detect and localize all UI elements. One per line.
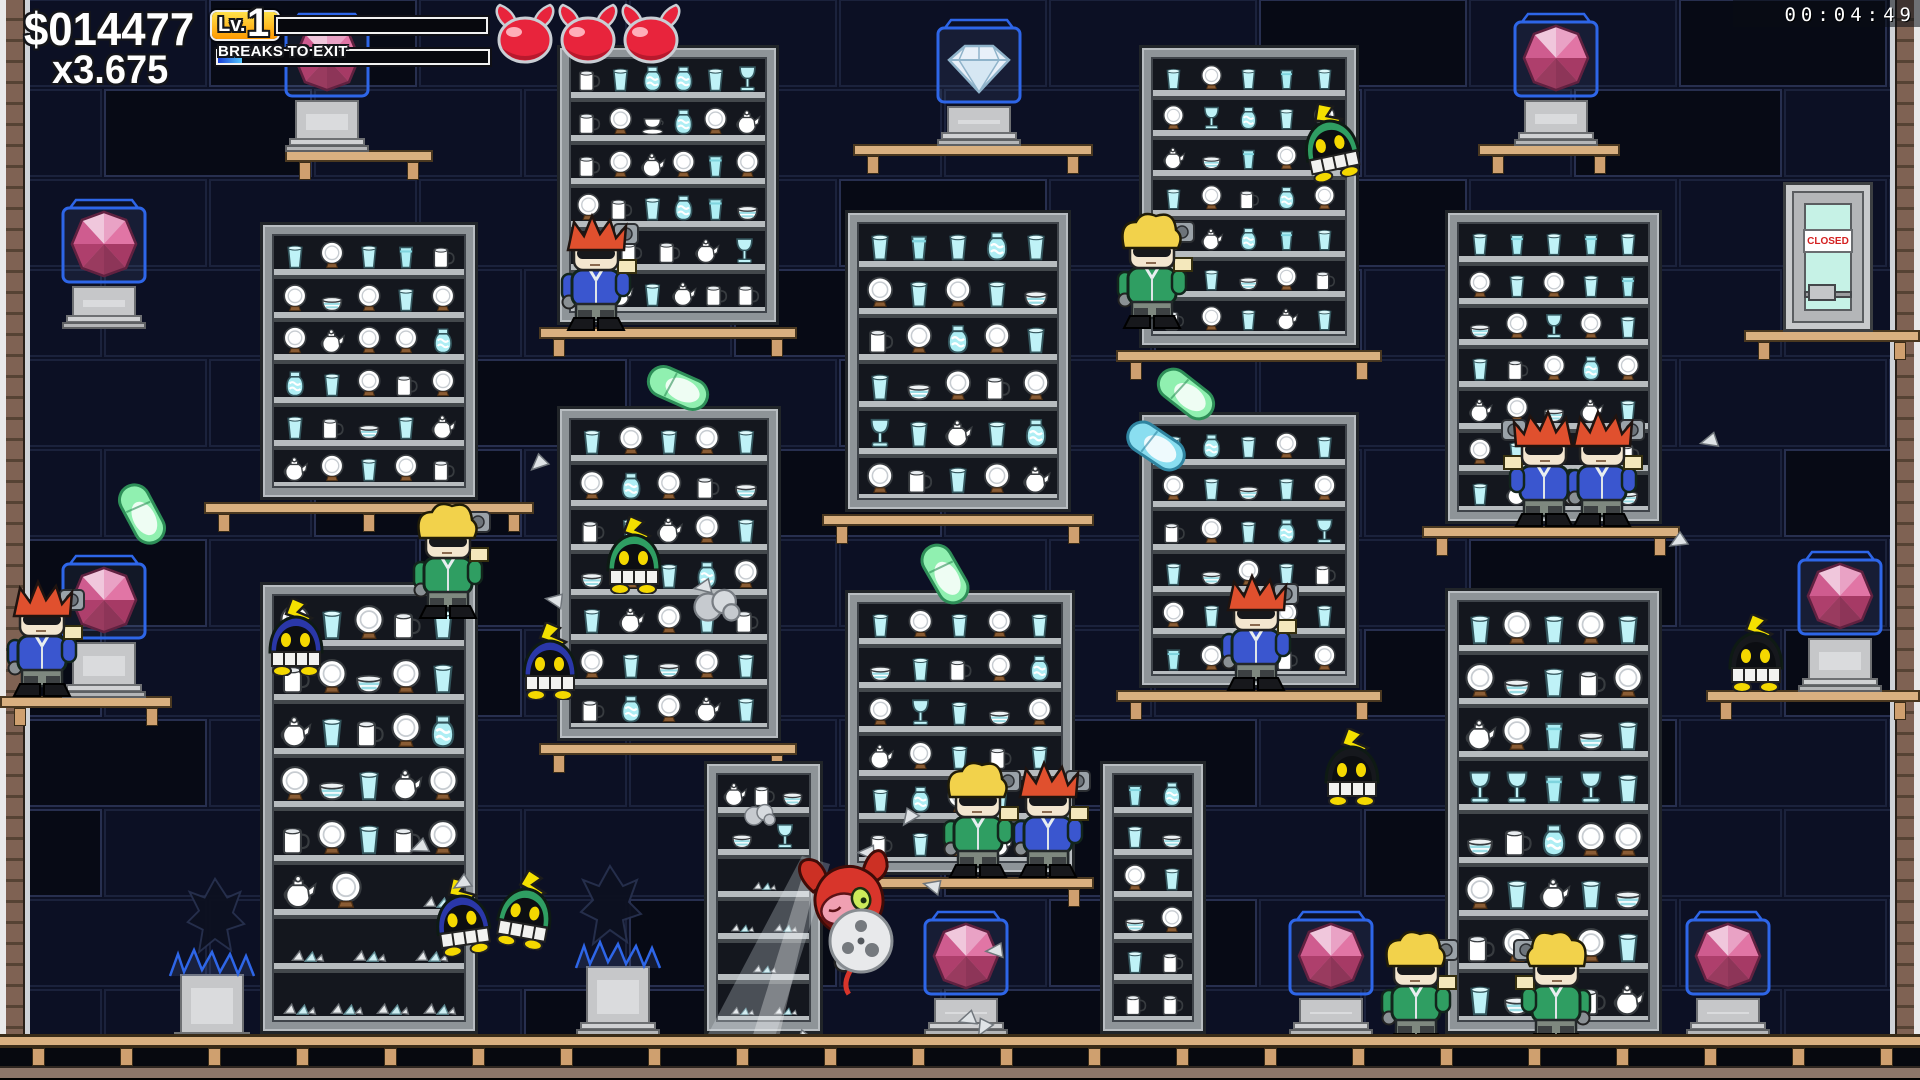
platform-post — [553, 339, 565, 357]
shelf-interior — [1112, 773, 1194, 1022]
pedestal-panel — [958, 120, 1000, 124]
floor-post — [912, 1048, 925, 1066]
dish-teapot — [733, 104, 762, 135]
display-case — [935, 16, 1023, 106]
pedestal-base — [62, 322, 146, 329]
shelf-dishes — [573, 147, 763, 178]
shelf-dishes — [1155, 182, 1343, 210]
shelf-dishes — [1461, 351, 1646, 381]
platform-post — [771, 339, 783, 357]
dish-bowl — [1463, 816, 1497, 857]
dish-plate — [1021, 694, 1058, 726]
dish-plate — [315, 238, 349, 269]
dish-plate — [1500, 710, 1534, 751]
dish-bowl — [733, 190, 762, 221]
dish-plate — [651, 601, 687, 634]
dish-bucket — [389, 238, 423, 269]
dish-bowl — [315, 281, 349, 312]
shelf-row — [274, 321, 464, 364]
floor-base — [0, 1066, 1920, 1078]
shelf-dishes — [276, 409, 462, 440]
shelf-dishes — [861, 413, 1055, 448]
shelf-dishes — [276, 238, 462, 269]
dish-cup — [278, 409, 312, 440]
dish-cup — [426, 652, 460, 694]
guard-character — [2, 576, 86, 698]
platform-post — [363, 514, 375, 532]
shelf-board — [1459, 910, 1648, 920]
floor-post — [120, 1048, 133, 1066]
dish-bowl — [901, 366, 937, 401]
floor-plank — [0, 1034, 1920, 1048]
dish-plate — [689, 422, 725, 455]
shelf-dishes — [276, 451, 462, 482]
platform-post — [1130, 702, 1142, 720]
shelf-dishes — [1461, 710, 1646, 751]
dish-bucket — [901, 226, 937, 261]
dish-cup — [1611, 604, 1645, 645]
dish-cup — [1269, 471, 1304, 501]
dish-bowl — [1574, 710, 1608, 751]
dish-cup — [862, 606, 899, 638]
level-label: Lv. — [218, 15, 245, 35]
dish-cup — [1611, 226, 1645, 256]
dish-plate — [901, 319, 937, 354]
pedestal-base — [1798, 685, 1882, 692]
shelf-row — [859, 224, 1057, 271]
dish-plate — [1537, 351, 1571, 381]
dish-plate — [613, 422, 649, 455]
dish-teapot — [613, 601, 649, 634]
dish-cup — [1463, 351, 1497, 381]
platform-post — [1067, 156, 1079, 174]
dish-plate — [1156, 598, 1191, 628]
shelf-board — [274, 855, 464, 865]
dish-goblet — [733, 61, 762, 92]
door-frame: CLOSED — [1792, 191, 1864, 323]
dish-plate — [862, 459, 898, 494]
dish-plate — [352, 281, 386, 312]
dish-cup — [1574, 268, 1608, 298]
shelf-row — [1459, 224, 1648, 266]
dish-shards — [279, 974, 319, 1016]
dish-plate — [1574, 816, 1608, 857]
dish-plate — [574, 467, 610, 500]
dish-teapot — [862, 738, 899, 770]
platform-post — [508, 514, 520, 532]
shelf-board — [859, 494, 1057, 500]
dish-cup — [1231, 62, 1266, 90]
shelf-row — [1114, 817, 1192, 859]
level-progress-bar — [276, 17, 488, 34]
shelf-board — [274, 801, 464, 811]
dish-vase — [1021, 650, 1058, 682]
dish-bucket — [1231, 142, 1266, 170]
dish-vase — [1537, 816, 1571, 857]
dish-plate — [1194, 303, 1229, 331]
dish-shards — [287, 921, 327, 963]
dish-bucket — [1156, 641, 1191, 671]
shelf-board — [1153, 331, 1345, 336]
shelf-dishes — [1116, 819, 1190, 849]
floor-post — [1880, 1048, 1893, 1066]
dish-vase — [278, 366, 312, 397]
guard-character — [1008, 757, 1092, 879]
dish-bucket — [1574, 226, 1608, 256]
dish-bowl — [1500, 657, 1534, 698]
floor-post — [1704, 1048, 1717, 1066]
dish-shards — [349, 921, 389, 963]
shelf-board — [274, 1016, 464, 1022]
dish-cup — [728, 422, 764, 455]
shelf-row — [1459, 814, 1648, 867]
lives-hearts — [492, 2, 684, 69]
dish-plate — [426, 281, 460, 312]
floor-post — [1352, 1048, 1365, 1066]
smoke-puff — [742, 798, 778, 827]
dish-goblet — [902, 694, 939, 726]
dish-mug — [426, 238, 460, 269]
dish-bowl — [862, 650, 899, 682]
dish-cup — [1537, 604, 1571, 645]
life-heart-icon — [618, 2, 684, 69]
dish-cup — [1156, 182, 1191, 210]
dish-goblet — [1574, 763, 1608, 804]
dish-plate — [1154, 903, 1190, 933]
breaks-to-exit-label: BREAKS TO EXIT — [218, 44, 348, 59]
floor-post — [1528, 1048, 1541, 1066]
dish-plate — [979, 319, 1015, 354]
dish-plate — [1194, 62, 1229, 90]
shelf-row — [1114, 901, 1192, 943]
dish-plate — [426, 366, 460, 397]
shelf-row — [1114, 775, 1192, 817]
shelf-board — [859, 354, 1057, 364]
shelf-dishes — [861, 694, 1059, 726]
pedestal-base — [937, 139, 1021, 146]
shelf-unit — [1100, 761, 1206, 1034]
dish-cup — [1231, 429, 1266, 459]
dish-plate — [389, 451, 423, 482]
door-handle — [1808, 284, 1836, 301]
dish-vase — [613, 690, 649, 723]
floor-post — [32, 1048, 45, 1066]
platform-post — [299, 162, 311, 180]
dish-vase — [1269, 514, 1304, 544]
dish-cup — [1194, 263, 1229, 291]
dish-teapot — [278, 706, 312, 748]
dish-mug — [278, 813, 312, 855]
life-heart-icon — [555, 2, 621, 69]
dish-bowl — [1231, 471, 1266, 501]
dish-bowl — [1018, 273, 1054, 308]
dish-vase — [1194, 429, 1229, 459]
shelf-board — [1459, 698, 1648, 708]
shelf-board — [1114, 849, 1192, 859]
dish-plate — [1574, 309, 1608, 339]
dish-bowl — [315, 759, 349, 801]
display-case — [1287, 908, 1375, 998]
dish-plate — [651, 690, 687, 723]
dish-plate — [352, 366, 386, 397]
shelf-row — [1114, 942, 1192, 984]
dish-cup — [701, 61, 730, 92]
dish-cup — [902, 650, 939, 682]
platform-plank — [822, 514, 1094, 526]
platform-post — [1130, 362, 1142, 380]
dish-cup — [1537, 226, 1571, 256]
dish-cup — [278, 238, 312, 269]
bomb-enemy — [516, 622, 584, 700]
shelf-row — [1459, 602, 1648, 655]
dish-cup — [1574, 869, 1608, 910]
game-viewport[interactable]: CLOSED $014477 x3.675 Lv. 1 BREAKS TO EX… — [0, 0, 1920, 1080]
shelf-board — [859, 401, 1057, 411]
shelf-dishes — [573, 690, 765, 723]
score-display: $014477 — [24, 6, 194, 52]
dish-vase — [1154, 777, 1190, 807]
shelf-board — [859, 261, 1057, 271]
shelf-row — [1114, 984, 1192, 1022]
shelf-board — [571, 723, 767, 729]
dish-mug — [1500, 351, 1534, 381]
dish-cup — [1194, 471, 1229, 501]
dish-bucket — [1117, 777, 1153, 807]
dish-mug — [315, 409, 349, 440]
dish-mug — [862, 319, 898, 354]
dish-cup — [1500, 268, 1534, 298]
dish-shards — [326, 974, 366, 1016]
shelf-board — [1459, 256, 1648, 266]
dish-mug — [689, 467, 725, 500]
dish-mug — [733, 276, 762, 307]
dish-plate — [701, 104, 730, 135]
platform-post — [1068, 526, 1080, 544]
shelf-row — [1153, 468, 1345, 511]
shelf-dishes — [573, 104, 763, 135]
shelf-board — [1153, 501, 1345, 511]
dish-plate — [389, 323, 423, 354]
shard-debris — [452, 872, 474, 890]
dish-cup — [862, 781, 899, 813]
wooden-platform — [1478, 144, 1620, 176]
dish-plate — [689, 511, 725, 544]
guard-character — [1376, 926, 1460, 1048]
dish-cup — [728, 690, 764, 723]
dish-plate — [606, 147, 635, 178]
dish-plate — [979, 459, 1015, 494]
shard-debris — [526, 450, 551, 472]
dish-teapot — [279, 867, 319, 909]
bomb-enemy — [262, 598, 330, 676]
dish-plate — [389, 706, 423, 748]
dish-cup — [901, 273, 937, 308]
guard-character — [556, 210, 640, 332]
dish-bucket — [1537, 710, 1571, 751]
shelf-row — [1459, 867, 1648, 920]
shelf-row — [1459, 655, 1648, 708]
shelf-unit — [845, 210, 1071, 512]
dish-plate — [1463, 869, 1497, 910]
dish-plate — [1463, 268, 1497, 298]
dish-plate — [1537, 268, 1571, 298]
shelf-board — [274, 354, 464, 364]
platform-post — [1654, 538, 1666, 556]
dish-cup — [1231, 303, 1266, 331]
dish-bowl — [651, 646, 687, 679]
dish-teapot — [669, 276, 698, 307]
dish-teapot — [689, 233, 724, 264]
dish-teapot — [1269, 303, 1304, 331]
dish-cup — [728, 646, 764, 679]
dish-bucket — [701, 147, 730, 178]
shelf-row — [571, 145, 765, 188]
pedestal-panel — [1535, 114, 1577, 124]
dish-cup — [638, 190, 667, 221]
dish-teapot — [638, 147, 667, 178]
bomb-enemy — [600, 516, 668, 594]
platform-post — [1436, 538, 1448, 556]
dish-plate — [352, 323, 386, 354]
shelf-row — [274, 236, 464, 279]
dish-bowl — [352, 652, 386, 694]
dish-cup — [1611, 763, 1645, 804]
dish-plate — [1307, 641, 1342, 671]
closed-sign: CLOSED — [1803, 229, 1853, 253]
pedestal-panel — [597, 980, 639, 1014]
shelf-row — [1114, 859, 1192, 901]
floor-post — [736, 1048, 749, 1066]
shelf-dishes — [861, 226, 1055, 261]
dish-teapot — [389, 759, 423, 801]
dish-cup — [1307, 303, 1342, 331]
platform-post — [1594, 156, 1606, 174]
dish-plate — [389, 652, 423, 694]
shelf-dishes — [1461, 657, 1646, 698]
shelf-board — [274, 397, 464, 407]
shelf-dishes — [1461, 869, 1646, 910]
dish-vase — [940, 319, 976, 354]
dish-plate — [669, 147, 698, 178]
floor-post — [472, 1048, 485, 1066]
shard-debris — [1668, 530, 1690, 548]
dish-cup — [1611, 922, 1645, 963]
shelf-board — [571, 455, 767, 465]
wooden-platform — [1116, 690, 1382, 722]
dish-mug — [941, 650, 978, 682]
dish-plate — [1463, 435, 1497, 465]
dish-goblet — [1194, 102, 1229, 130]
shelf-dishes — [1461, 268, 1646, 298]
dish-goblet — [862, 413, 898, 448]
floor-underside — [0, 1048, 1920, 1066]
dish-plate — [315, 813, 349, 855]
dish-teapot — [1463, 710, 1497, 751]
shelf-row — [1459, 266, 1648, 308]
exit-door: CLOSED — [1783, 182, 1873, 332]
dish-teapot — [1018, 459, 1054, 494]
shelf-board — [571, 92, 765, 102]
shelf-dishes — [1461, 604, 1646, 645]
shelf-board — [571, 135, 765, 145]
door-window: CLOSED — [1804, 203, 1852, 311]
shelf-dishes — [861, 606, 1059, 638]
dish-plate — [1194, 514, 1229, 544]
dish-cupw — [638, 104, 667, 135]
platform-plank — [1116, 350, 1382, 362]
dish-bowl — [1231, 263, 1266, 291]
dish-cup — [1611, 309, 1645, 339]
pedestal-panel — [83, 300, 125, 307]
shelf-dishes — [1116, 903, 1190, 933]
dish-plate — [651, 467, 687, 500]
dish-teapot — [1463, 393, 1497, 423]
shelf-row — [859, 457, 1057, 500]
dish-plate — [1307, 182, 1342, 210]
dish-plate — [940, 273, 976, 308]
closed-sign-text: CLOSED — [1807, 236, 1849, 247]
dish-bucket — [1269, 223, 1304, 251]
platform-post — [867, 156, 879, 174]
dish-mug — [1154, 986, 1190, 1016]
shelf-row — [859, 604, 1061, 648]
shelf-row — [274, 972, 464, 1022]
dish-plate — [1194, 182, 1229, 210]
dish-plate — [902, 738, 939, 770]
dish-cup — [728, 511, 764, 544]
platform-post — [553, 755, 565, 773]
dish-cup — [1018, 226, 1054, 261]
floor-post — [648, 1048, 661, 1066]
shelf-dishes — [1155, 471, 1343, 501]
pedestal-panel — [83, 656, 125, 676]
dish-cup — [902, 825, 939, 857]
floor-post — [1440, 1048, 1453, 1066]
dish-plate — [689, 646, 725, 679]
dish-mug — [701, 276, 730, 307]
dish-cup — [1156, 556, 1191, 586]
dish-cup — [1018, 319, 1054, 354]
shelf-row — [1153, 59, 1345, 100]
dish-cup — [638, 276, 667, 307]
dish-plate — [352, 598, 386, 640]
platform-post — [1894, 342, 1906, 360]
platform-post — [1068, 889, 1080, 907]
saw-blade — [826, 906, 896, 976]
bomb-enemy — [486, 865, 567, 954]
pedestal-panel — [1310, 1012, 1352, 1014]
game-world — [0, 0, 1920, 1080]
pedestal-panel — [1819, 652, 1861, 670]
shelf-board — [1459, 645, 1648, 655]
dish-cup — [1500, 869, 1534, 910]
dish-plate — [733, 147, 762, 178]
dish-cup — [1231, 514, 1266, 544]
shelf-interior — [857, 222, 1059, 500]
dish-cup — [1537, 657, 1571, 698]
dish-plate — [981, 606, 1018, 638]
dish-goblet — [1537, 309, 1571, 339]
shelf-dishes — [276, 366, 462, 397]
smoke-puff-dark — [574, 864, 646, 948]
shelf-dishes — [1155, 62, 1343, 90]
dish-mug — [352, 706, 386, 748]
display-case — [1684, 908, 1772, 998]
dish-cup — [1611, 710, 1645, 751]
dish-vase — [669, 104, 698, 135]
dish-teapot — [1611, 975, 1645, 1016]
dish-plate — [326, 867, 366, 909]
